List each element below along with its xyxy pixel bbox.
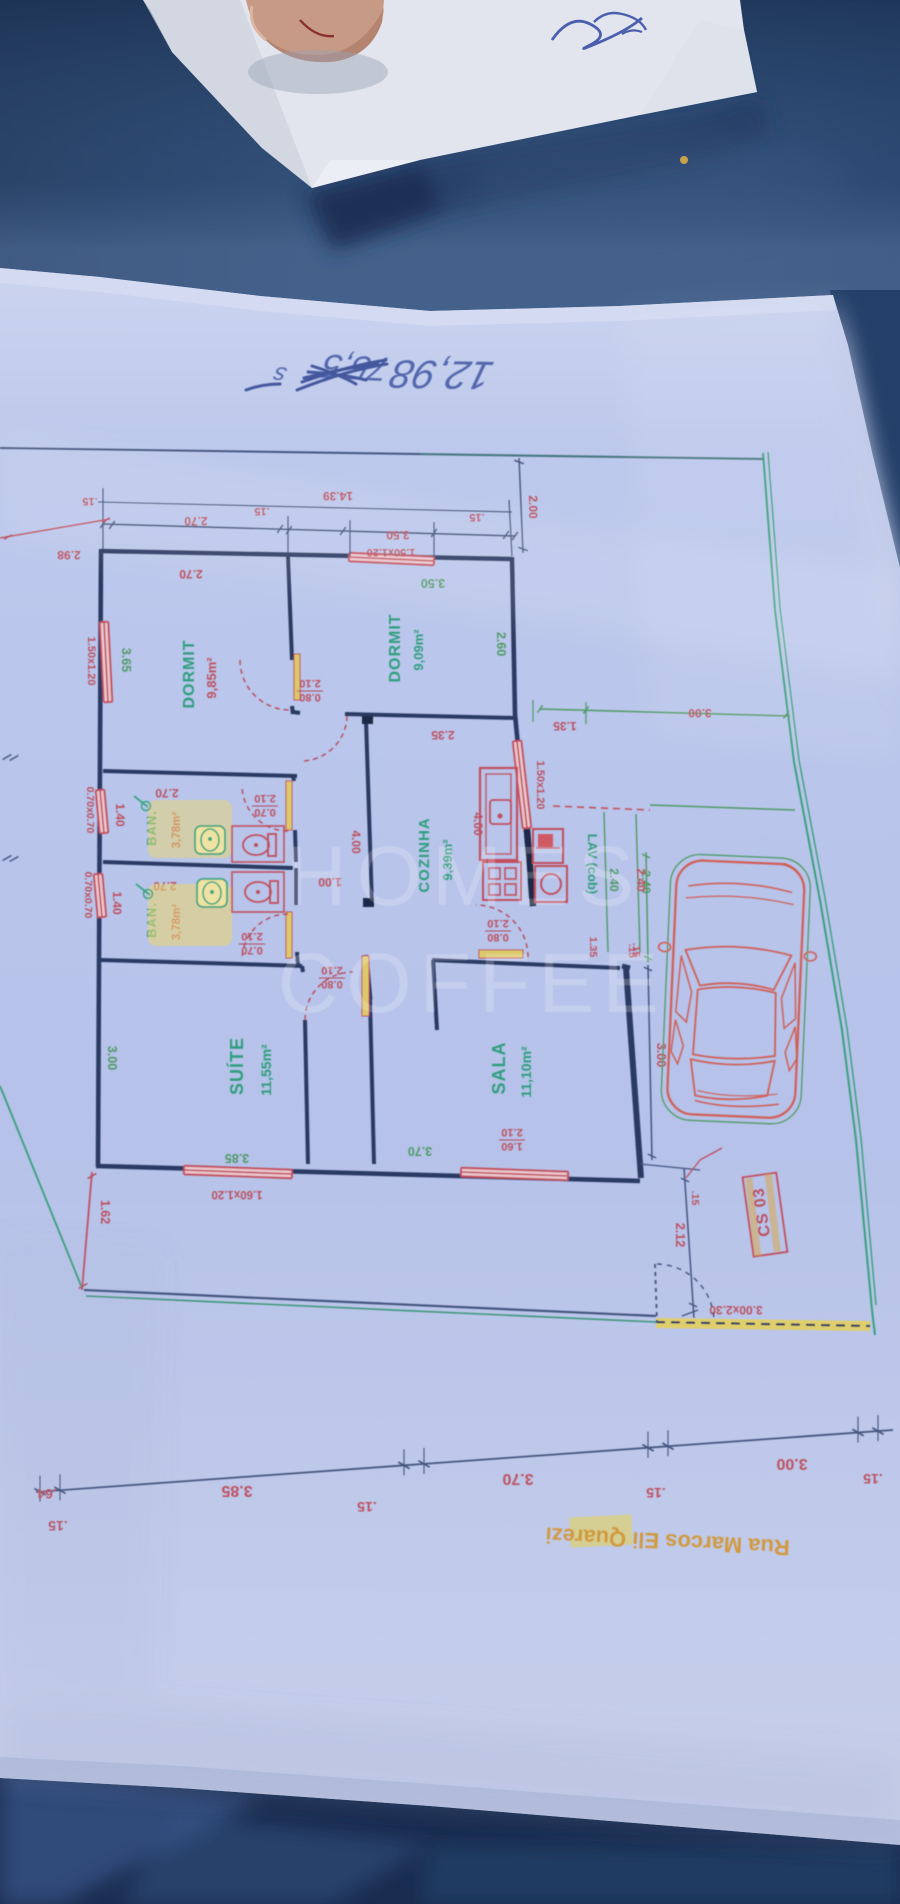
svg-text:9,09m²: 9,09m² <box>411 629 426 671</box>
svg-text:1.50x1.20: 1.50x1.20 <box>534 761 546 810</box>
svg-text:2.10: 2.10 <box>501 1126 522 1138</box>
svg-text:1.50x1.20: 1.50x1.20 <box>85 637 97 686</box>
svg-text:2.10: 2.10 <box>254 792 275 804</box>
svg-text:HOMES: HOMES <box>286 829 644 923</box>
svg-text:.15: .15 <box>357 1499 377 1515</box>
svg-text:.15: .15 <box>646 1485 666 1501</box>
svg-text:2.70: 2.70 <box>155 786 179 800</box>
svg-text:DORMIT: DORMIT <box>387 613 404 682</box>
svg-text:11,55m²: 11,55m² <box>258 1044 274 1096</box>
svg-text:SALA: SALA <box>489 1042 509 1095</box>
svg-text:9,85m²: 9,85m² <box>204 657 219 699</box>
svg-text:3.70: 3.70 <box>408 1144 432 1158</box>
svg-text:COFFEE: COFFEE <box>278 936 667 1030</box>
svg-text:0.70: 0.70 <box>254 806 275 818</box>
svg-text:12,98: 12,98 <box>385 351 498 398</box>
svg-text:1.62: 1.62 <box>98 1200 112 1224</box>
svg-text:1.60: 1.60 <box>501 1140 522 1152</box>
svg-text:0.70x0.70: 0.70x0.70 <box>82 872 94 919</box>
svg-text:3.85: 3.85 <box>225 1151 249 1165</box>
svg-text:1.40: 1.40 <box>110 891 124 915</box>
svg-text:0.80: 0.80 <box>299 691 320 703</box>
svg-text:3.65: 3.65 <box>119 648 133 672</box>
svg-text:3.00: 3.00 <box>654 1043 668 1067</box>
svg-text:3.00: 3.00 <box>776 1455 807 1472</box>
svg-text:1.60x1.20: 1.60x1.20 <box>211 1188 262 1200</box>
svg-text:3.00x2.30: 3.00x2.30 <box>709 1303 763 1317</box>
svg-text:2.35: 2.35 <box>431 728 455 742</box>
svg-text:0.70: 0.70 <box>241 944 262 956</box>
svg-text:1.35: 1.35 <box>553 719 577 733</box>
svg-text:3.70: 3.70 <box>502 1470 533 1487</box>
svg-text:3.00: 3.00 <box>105 1046 119 1070</box>
svg-text:2.12: 2.12 <box>673 1223 687 1247</box>
svg-text:DORMIT: DORMIT <box>181 639 198 708</box>
svg-text:2.10: 2.10 <box>299 677 320 689</box>
svg-text:1.40: 1.40 <box>113 803 127 827</box>
svg-text:2.60: 2.60 <box>494 632 508 656</box>
svg-text:0.70x0.70: 0.70x0.70 <box>84 787 96 834</box>
svg-text:3.85: 3.85 <box>221 1482 252 1499</box>
svg-text:2.10: 2.10 <box>241 930 262 942</box>
svg-text:SUÍTE: SUÍTE <box>226 1037 247 1095</box>
svg-text:11,10m²: 11,10m² <box>518 1046 534 1098</box>
svg-text:.15: .15 <box>689 1191 701 1206</box>
svg-text:.15: .15 <box>863 1471 883 1487</box>
